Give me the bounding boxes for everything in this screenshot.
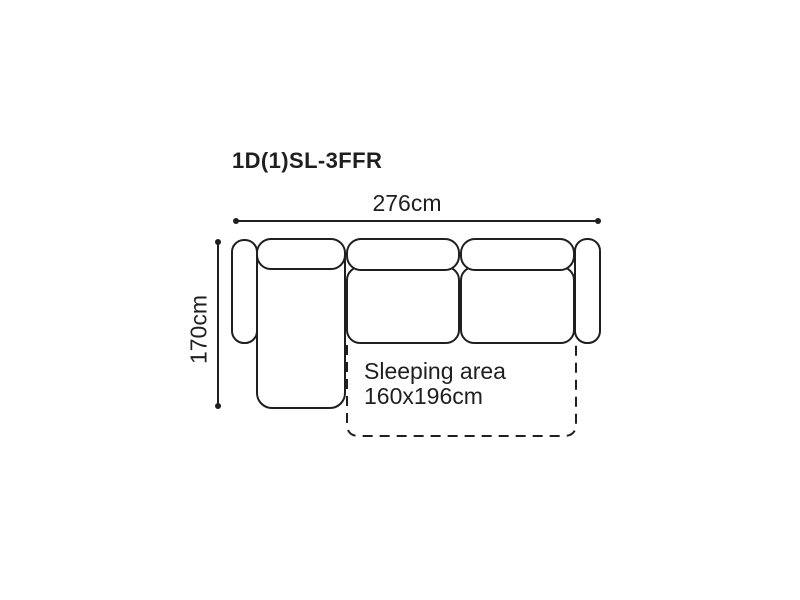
width-dimension-end-dot (595, 218, 601, 224)
sleeping-area-label: Sleeping area 160x196cm (364, 359, 506, 409)
left-armrest (231, 239, 258, 344)
sofa-dimensions-diagram: 1D(1)SL-3FFR 276cm 170cm Sleeping area 1… (0, 0, 800, 600)
right-armrest (574, 238, 601, 344)
middle-backrest-cushion (346, 238, 460, 271)
right-seat-cushion (460, 266, 575, 344)
sleeping-area-label-line1: Sleeping area (364, 359, 506, 384)
width-dimension-label: 276cm (307, 190, 507, 217)
depth-dimension-line (217, 241, 219, 407)
model-code-title: 1D(1)SL-3FFR (232, 148, 382, 174)
right-backrest-cushion (460, 238, 575, 271)
middle-seat-cushion (346, 266, 460, 344)
depth-dimension-label: 170cm (187, 270, 212, 390)
sleeping-area-label-line2: 160x196cm (364, 384, 506, 409)
depth-dimension-end-dot (215, 403, 221, 409)
width-dimension-start-dot (233, 218, 239, 224)
depth-dimension-start-dot (215, 239, 221, 245)
chaise-backrest-cushion (256, 238, 346, 270)
width-dimension-line (236, 220, 598, 222)
